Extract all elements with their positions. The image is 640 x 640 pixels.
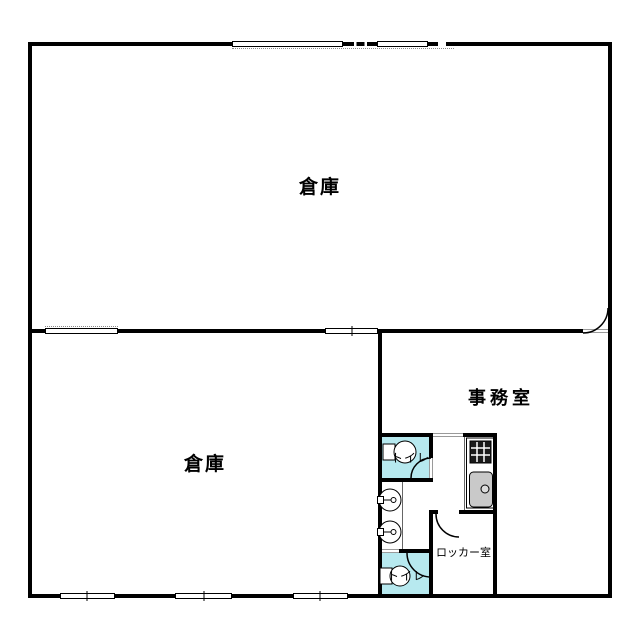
locker-room-label: ロッカー室 bbox=[436, 548, 491, 559]
warehouse-lower-label: 倉庫 bbox=[184, 455, 226, 474]
sink-drain-icon bbox=[481, 485, 489, 493]
stove-icon bbox=[470, 441, 491, 463]
door-arc-locker-room bbox=[436, 514, 459, 537]
fixture-layer bbox=[0, 0, 640, 640]
wash-basin-2-icon bbox=[378, 521, 402, 543]
toilet-upper-label: トイレ bbox=[391, 452, 430, 464]
toilet-lower-label: トイレ bbox=[387, 570, 426, 582]
kitchenette-unit-icon bbox=[467, 438, 494, 508]
warehouse-upper-label: 倉庫 bbox=[299, 178, 341, 197]
door-arc-office-entry bbox=[583, 308, 608, 333]
wash-basin-1-icon bbox=[378, 489, 402, 511]
floorplan-canvas: 倉庫 倉庫 事務室 トイレ トイレ ロッカー室 bbox=[0, 0, 640, 640]
office-label: 事務室 bbox=[468, 389, 534, 407]
